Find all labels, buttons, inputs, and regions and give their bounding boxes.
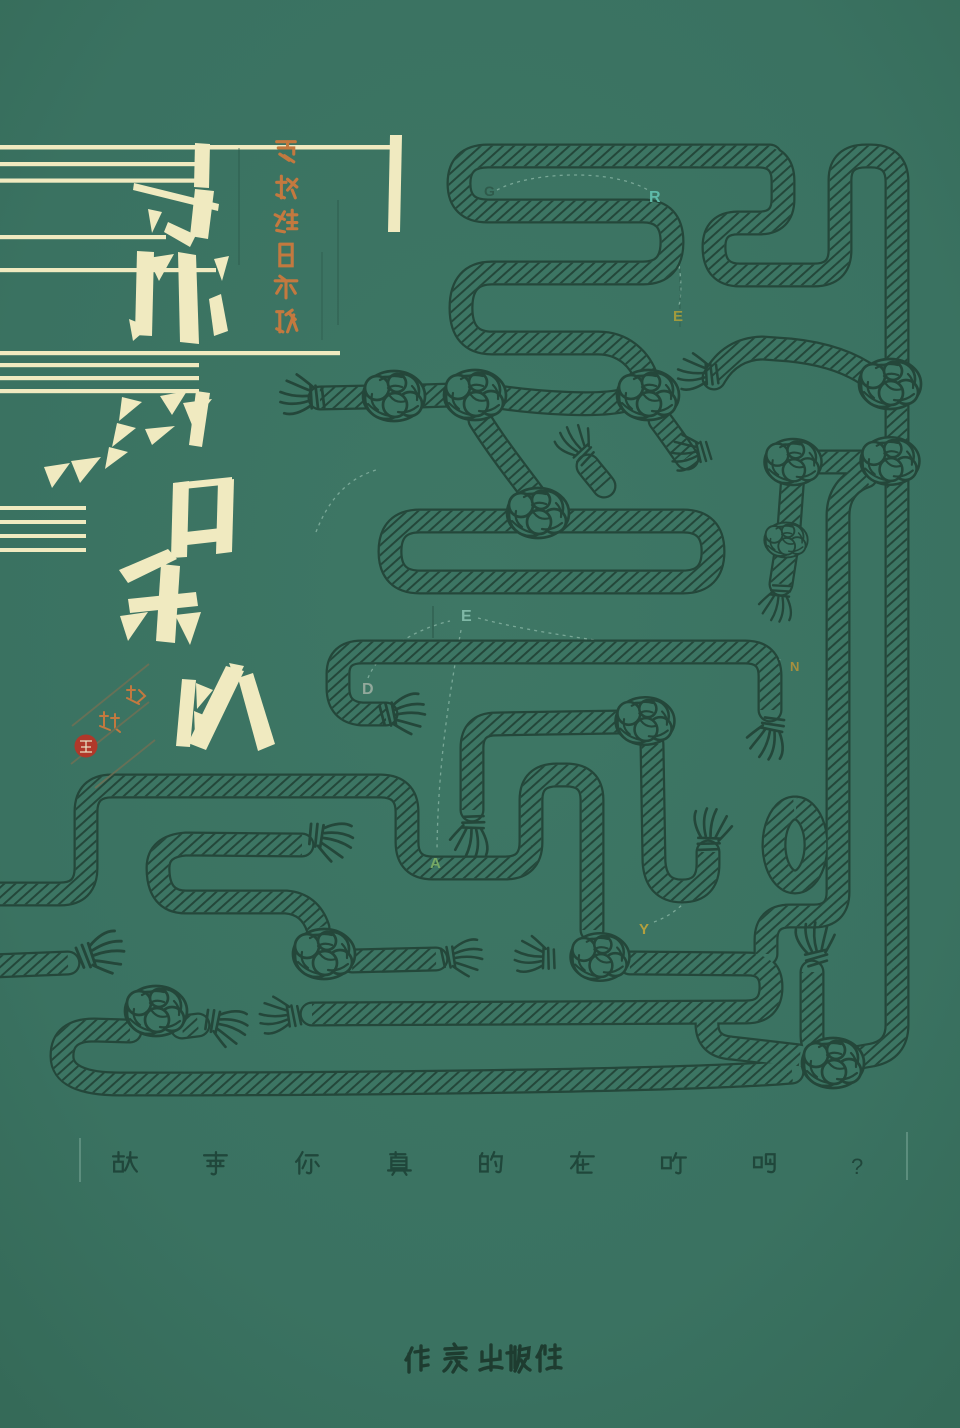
svg-text:D: D <box>362 681 374 698</box>
svg-text:?: ? <box>851 1154 863 1179</box>
svg-text:A: A <box>430 855 441 872</box>
svg-text:E: E <box>461 608 472 625</box>
svg-text:R: R <box>649 189 661 206</box>
svg-text:N: N <box>790 659 799 674</box>
svg-text:G: G <box>484 183 495 199</box>
svg-text:E: E <box>673 308 683 325</box>
svg-text:Y: Y <box>639 921 649 938</box>
